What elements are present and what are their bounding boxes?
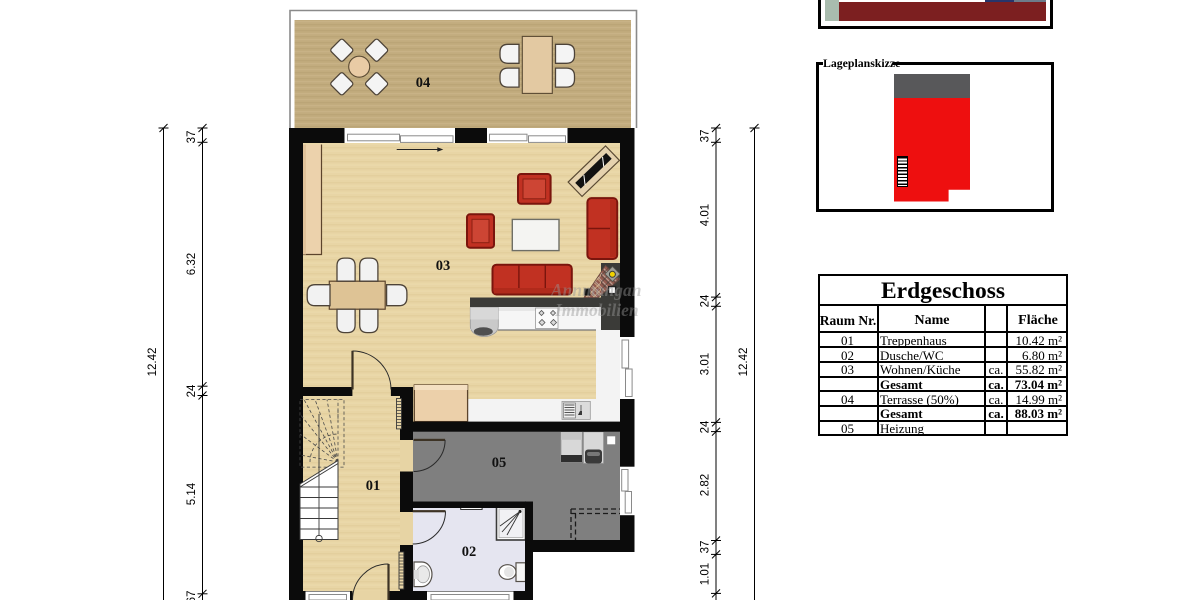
svg-text:04: 04	[416, 75, 431, 91]
svg-text:05: 05	[492, 455, 507, 471]
svg-text:4.01: 4.01	[700, 204, 712, 226]
svg-text:6.32: 6.32	[186, 253, 198, 275]
svg-text:3.01: 3.01	[700, 353, 712, 375]
svg-text:37: 37	[700, 541, 712, 554]
svg-text:67: 67	[186, 591, 198, 600]
svg-text:37: 37	[700, 130, 712, 143]
svg-text:Immobilien: Immobilien	[554, 300, 639, 320]
svg-text:01: 01	[366, 478, 381, 494]
svg-text:02: 02	[462, 544, 477, 560]
svg-text:1.01: 1.01	[700, 563, 712, 585]
svg-text:37: 37	[186, 131, 198, 144]
svg-text:12.42: 12.42	[147, 348, 159, 377]
svg-text:24: 24	[186, 384, 198, 397]
svg-text:5.14: 5.14	[186, 482, 198, 505]
svg-text:03: 03	[436, 258, 451, 274]
svg-text:24: 24	[700, 420, 712, 433]
svg-text:Annmangan: Annmangan	[550, 280, 641, 300]
svg-text:24: 24	[700, 294, 712, 307]
svg-text:2.82: 2.82	[700, 474, 712, 496]
svg-text:12.42: 12.42	[738, 348, 750, 377]
